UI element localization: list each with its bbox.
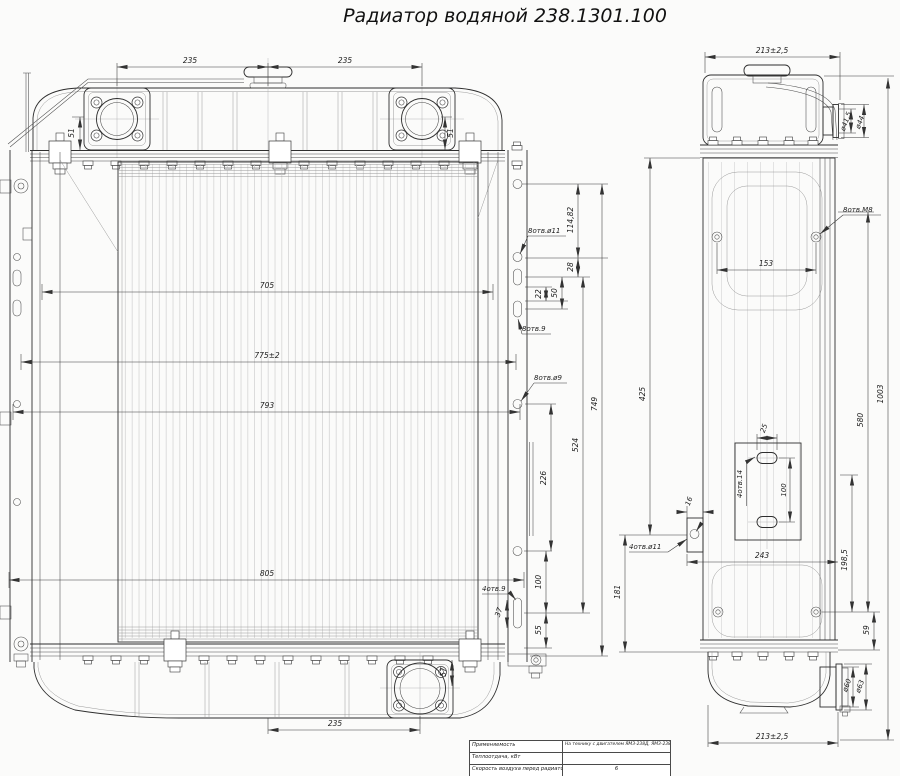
side-bottom-tank (708, 652, 850, 716)
spec-table: Применяемость На технику с двигателем ЯМ… (469, 740, 671, 776)
radiator-drawing: 235 235 51 51 705 775±2 793 805 114,82 2… (0, 0, 900, 776)
callout-8otv-9: 8отв.9 (522, 325, 546, 333)
side-body (687, 137, 838, 660)
dim-243: 243 (755, 551, 770, 560)
spec-row-applicability: Применяемость На технику с двигателем ЯМ… (470, 741, 670, 752)
dim-580: 580 (856, 413, 865, 428)
dim-226: 226 (539, 471, 548, 486)
callout-8otv-d11: 8отв.ø11 (528, 227, 560, 235)
side-view (687, 65, 850, 716)
dim-153: 153 (759, 259, 774, 268)
dim-28: 28 (566, 262, 575, 272)
spec-value-heat-output (563, 753, 670, 764)
spec-value-applicability: На технику с двигателем ЯМЗ-238Д, ЯМЗ-23… (563, 741, 670, 752)
dim-425: 425 (638, 387, 647, 402)
drawing-sheet: 235 235 51 51 705 775±2 793 805 114,82 2… (0, 0, 900, 776)
dim-181: 181 (613, 585, 622, 599)
callout-4otv-14: 4отв.14 (736, 470, 744, 498)
dim-524: 524 (571, 438, 580, 453)
dim-213-bottom: 213±2,5 (756, 732, 789, 741)
dim-235-top-left: 235 (183, 56, 198, 65)
spec-value-air-speed: 6 (563, 765, 670, 776)
callout-8otv-d9: 8отв.ø9 (534, 374, 562, 382)
dim-d60: ø60 (841, 677, 854, 694)
drawing-title: Радиатор водяной 238.1301.100 (343, 5, 667, 27)
spec-row-air-speed: Скорость воздуха перед радиатором, м/с 6 (470, 764, 670, 776)
dim-d44: ø44 (854, 115, 866, 131)
dim-793: 793 (260, 401, 275, 410)
dim-22: 22 (534, 289, 543, 299)
spec-label-heat-output: Теплоотдача, кВт (470, 753, 563, 764)
callout-4otv-d11: 4отв.ø11 (629, 543, 661, 551)
left-bracket (0, 150, 60, 667)
dim-50: 50 (550, 288, 559, 298)
callout-4otv-9: 4отв.9 (482, 585, 506, 593)
radiator-core (60, 160, 498, 642)
dim-198-5: 198,5 (840, 549, 849, 571)
front-top-tank (8, 58, 502, 162)
spec-label-applicability: Применяемость (470, 741, 563, 752)
dim-775: 775±2 (254, 351, 280, 360)
callout-8otv-m8: 8отв.М8 (843, 206, 873, 214)
side-small-bracket (687, 518, 703, 552)
dim-705: 705 (260, 281, 275, 290)
dim-805: 805 (260, 569, 275, 578)
dim-55: 55 (534, 625, 543, 635)
dim-57: 57 (439, 667, 448, 677)
dim-1003: 1003 (876, 384, 885, 403)
spec-row-heat-output: Теплоотдача, кВт (470, 752, 670, 764)
dim-235-top-right: 235 (338, 56, 353, 65)
dim-114-82: 114,82 (566, 207, 575, 233)
overflow-tube (8, 73, 244, 152)
side-top-bracket (703, 65, 844, 145)
dim-51-left: 51 (67, 128, 76, 138)
dim-37: 37 (493, 606, 505, 618)
dim-100-front: 100 (534, 575, 543, 590)
dim-749: 749 (590, 397, 599, 412)
front-view (0, 58, 546, 724)
spec-label-air-speed: Скорость воздуха перед радиатором, м/с (470, 765, 563, 776)
dim-16: 16 (684, 495, 695, 507)
dim-d63: ø63 (854, 679, 866, 695)
outlet-flange (380, 652, 460, 724)
dim-235-bottom: 235 (328, 719, 343, 728)
dim-213-top: 213±2,5 (756, 46, 789, 55)
dim-51-right: 51 (446, 128, 455, 138)
dim-59: 59 (862, 625, 871, 635)
dim-100-side: 100 (780, 483, 788, 497)
